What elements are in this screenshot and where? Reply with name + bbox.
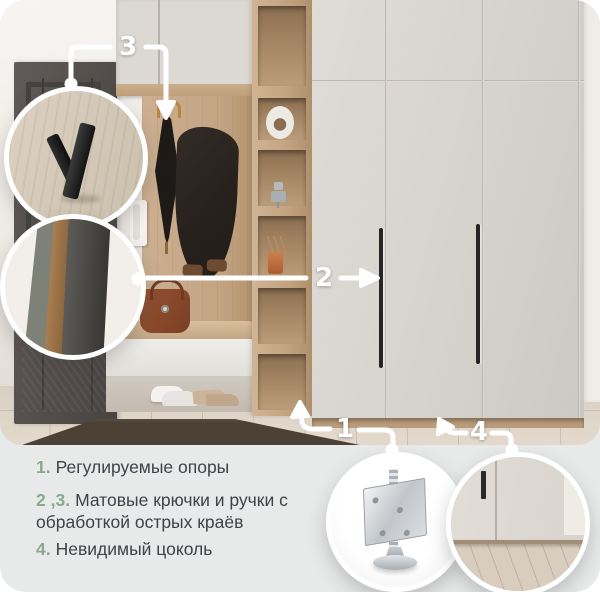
bench-drawer (106, 339, 252, 378)
callout-number-4: 4 (470, 417, 488, 447)
legend-item-4: 4.Невидимый цоколь (36, 538, 314, 560)
adjustable-foot-inset (326, 452, 466, 592)
wardrobe-seam (312, 80, 584, 82)
leather-bag (140, 289, 190, 333)
plinth-door-seam (495, 457, 497, 540)
decor-robot-figurine (270, 182, 287, 208)
shelf-column (252, 0, 312, 416)
wardrobe-seam (385, 0, 387, 418)
wardrobe-handle (476, 224, 480, 364)
matte-handle-icon (61, 214, 111, 360)
shelf-cubby (258, 6, 306, 86)
foot-metal-bracket (363, 478, 427, 547)
callout-number-3: 3 (119, 32, 137, 62)
legend-number: 1. (36, 457, 51, 477)
legend-text: Регулируемые опоры (56, 457, 230, 477)
wardrobe-seam (578, 0, 580, 418)
legend-text: Матовые крючки и ручки с обработкой остр… (36, 490, 288, 532)
legend-item-1: 1.Регулируемые опоры (36, 456, 314, 478)
coat-cuff (182, 264, 202, 277)
plinth-detail-inset (446, 452, 590, 592)
handle-detail-inset (0, 214, 146, 360)
umbrella-tip (165, 242, 168, 254)
callout-number-2: 2 (315, 263, 333, 293)
wardrobe-handle (379, 228, 383, 368)
robot-body (271, 191, 286, 202)
wardrobe-seam (482, 0, 484, 418)
cabinet-seam (158, 0, 160, 84)
plinth-wall (564, 457, 585, 535)
legend-item-2-3: 2 ,3.Матовые крючки и ручки с обработкой… (36, 489, 314, 533)
shelf-cubby (258, 354, 306, 410)
coat-cuff (207, 259, 227, 272)
decor-vase (266, 106, 294, 139)
plinth-floor (451, 540, 585, 591)
feature-legend: 1.Регулируемые опоры 2 ,3.Матовые крючки… (36, 456, 314, 571)
legend-number: 2 ,3. (36, 490, 70, 510)
shelf-cubby (258, 288, 306, 344)
robot-head (274, 182, 283, 190)
hook-detail-inset (4, 86, 148, 230)
legend-number: 4. (36, 539, 51, 559)
heels (206, 394, 239, 406)
foot-base-disc (373, 555, 417, 570)
product-infographic-card: 3 2 1 4 1.Регулируемые опоры 2 ,3.Матовы… (0, 0, 600, 592)
right-wall (584, 0, 600, 402)
plinth-edge (451, 540, 585, 544)
plinth-handle-tip (481, 471, 486, 499)
wardrobe (312, 0, 584, 428)
umbrella-hook-handle (157, 100, 181, 118)
legend-text: Невидимый цоколь (56, 539, 213, 559)
robot-leg (277, 202, 279, 208)
decor-reed-diffuser (268, 252, 283, 274)
callout-number-1: 1 (336, 414, 354, 444)
